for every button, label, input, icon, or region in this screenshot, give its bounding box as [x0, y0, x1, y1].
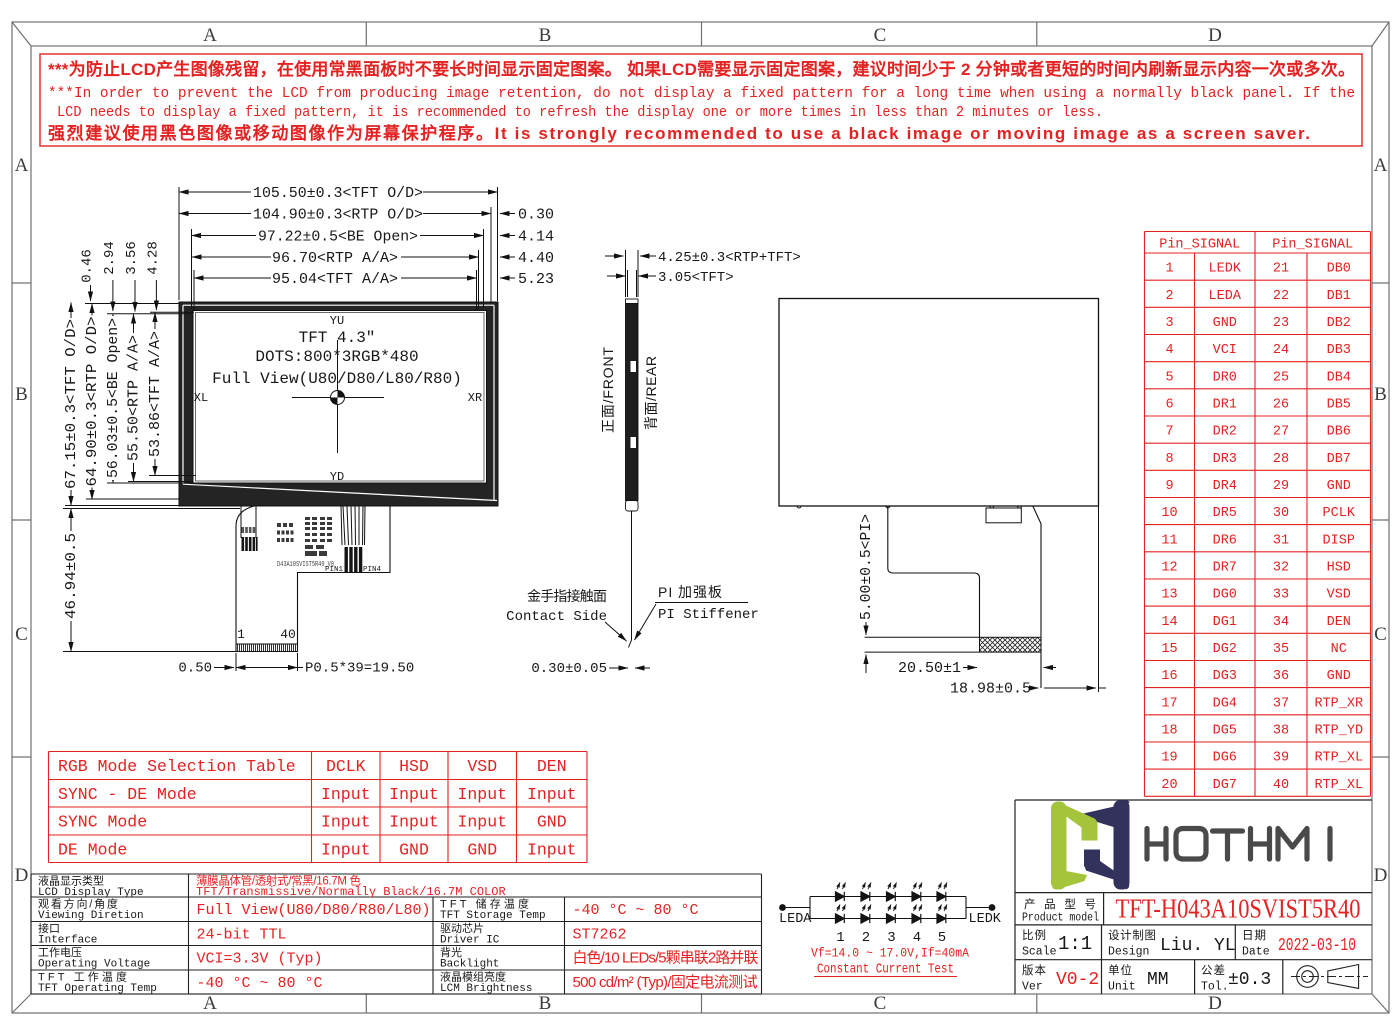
svg-text:53.86<TFT A/A>: 53.86<TFT A/A> — [147, 331, 164, 457]
svg-text:接口: 接口 — [38, 922, 60, 935]
svg-text:公差: 公差 — [1201, 963, 1225, 977]
svg-text:RTP_XL: RTP_XL — [1314, 751, 1363, 766]
svg-text:Vf=14.0 ~ 17.0V,If=40mA: Vf=14.0 ~ 17.0V,If=40mA — [811, 946, 969, 961]
svg-text:版本: 版本 — [1022, 963, 1047, 977]
svg-text:DR3: DR3 — [1213, 452, 1237, 467]
svg-text:Input: Input — [389, 785, 439, 804]
svg-text:26: 26 — [1273, 398, 1289, 413]
svg-text:0.50: 0.50 — [178, 661, 212, 677]
svg-text:1: 1 — [836, 930, 844, 946]
svg-text:A: A — [203, 993, 217, 1014]
svg-text:17: 17 — [1161, 696, 1177, 711]
svg-text:PCLK: PCLK — [1323, 506, 1356, 521]
svg-text:TFT Operating Temp: TFT Operating Temp — [38, 983, 157, 995]
svg-text:V0-2: V0-2 — [1056, 970, 1099, 990]
svg-text:2022-03-10: 2022-03-10 — [1278, 936, 1356, 956]
svg-text:DB3: DB3 — [1327, 343, 1351, 358]
svg-text:DB1: DB1 — [1327, 289, 1351, 304]
svg-text:40: 40 — [1273, 778, 1289, 793]
svg-text:46.94±0.5: 46.94±0.5 — [63, 533, 80, 619]
svg-text:液晶模组亮度: 液晶模组亮度 — [440, 970, 506, 984]
svg-text:D: D — [1208, 993, 1222, 1014]
svg-text:HSD: HSD — [399, 757, 429, 776]
svg-text:22: 22 — [1273, 289, 1289, 304]
svg-text:ST7262: ST7262 — [573, 927, 627, 944]
svg-text:SYNC - DE Mode: SYNC - DE Mode — [58, 785, 197, 804]
svg-text:DISP: DISP — [1323, 533, 1355, 548]
svg-text:DCLK: DCLK — [326, 757, 366, 776]
svg-text:金手指接触面: 金手指接触面 — [527, 588, 607, 604]
svg-text:PI 加强板: PI 加强板 — [658, 584, 722, 600]
svg-text:LCD needs to display a fixed p: LCD needs to display a fixed pattern, it… — [57, 104, 1103, 121]
svg-text:DR2: DR2 — [1213, 425, 1237, 440]
svg-text:DR5: DR5 — [1213, 506, 1237, 521]
svg-text:DR7: DR7 — [1213, 561, 1237, 576]
svg-text:67.15±0.3<TFT O/D>: 67.15±0.3<TFT O/D> — [63, 319, 80, 489]
svg-text:B: B — [15, 384, 28, 405]
svg-text:Unit: Unit — [1108, 981, 1136, 994]
svg-text:4.25±0.3<RTP+TFT>: 4.25±0.3<RTP+TFT> — [658, 250, 801, 266]
svg-text:Full View(U80/D80/L80/R80): Full View(U80/D80/L80/R80) — [212, 370, 462, 388]
svg-text:DB7: DB7 — [1327, 452, 1351, 467]
svg-text:56.03±0.5<BE Open>: 56.03±0.5<BE Open> — [105, 318, 122, 478]
svg-text:YU: YU — [330, 314, 344, 328]
svg-text:LCD Display Type: LCD Display Type — [38, 887, 144, 899]
svg-text:21: 21 — [1273, 262, 1289, 277]
svg-text:DB5: DB5 — [1327, 398, 1351, 413]
svg-text:0.30: 0.30 — [518, 207, 554, 224]
svg-text:Design: Design — [1108, 946, 1149, 959]
svg-text:GND: GND — [537, 813, 567, 832]
svg-text:NC: NC — [1331, 642, 1347, 657]
svg-text:37: 37 — [1273, 696, 1289, 711]
svg-text:A: A — [203, 25, 217, 46]
svg-text:DG6: DG6 — [1213, 751, 1237, 766]
svg-text:DB6: DB6 — [1327, 425, 1351, 440]
svg-text:4: 4 — [1165, 343, 1173, 358]
svg-text:RGB Mode Selection Table: RGB Mode Selection Table — [58, 757, 296, 776]
svg-text:液晶显示类型: 液晶显示类型 — [38, 874, 104, 888]
svg-text:2: 2 — [862, 930, 870, 946]
svg-text:36: 36 — [1273, 669, 1289, 684]
svg-text:驱动芯片: 驱动芯片 — [440, 921, 484, 935]
svg-text:Full View(U80/D80/R80/L80): Full View(U80/D80/R80/L80) — [197, 902, 431, 919]
svg-text:2.94: 2.94 — [102, 241, 118, 275]
svg-text:XR: XR — [468, 391, 482, 405]
svg-text:DG1: DG1 — [1213, 615, 1237, 630]
svg-text:TFT-H043A10SVIST5R40: TFT-H043A10SVIST5R40 — [1116, 894, 1361, 924]
svg-text:B: B — [539, 993, 552, 1014]
svg-text:D43A10SVIST5R40_V0: D43A10SVIST5R40_V0 — [277, 561, 334, 569]
svg-text:-40 °C ~ 80 °C: -40 °C ~ 80 °C — [197, 975, 323, 992]
svg-text:13: 13 — [1161, 588, 1177, 603]
svg-text:2: 2 — [1165, 289, 1173, 304]
svg-text:31: 31 — [1273, 533, 1289, 548]
svg-text:25: 25 — [1273, 370, 1289, 385]
svg-text:DR4: DR4 — [1213, 479, 1237, 494]
svg-text:5: 5 — [938, 930, 946, 946]
svg-text:9: 9 — [1165, 479, 1173, 494]
svg-text:LEDK: LEDK — [1209, 262, 1242, 277]
svg-text:500 cd/m² (Typ)/固定电流测试: 500 cd/m² (Typ)/固定电流测试 — [573, 974, 758, 991]
svg-text:4.40: 4.40 — [518, 250, 554, 267]
svg-text:P0.5*39=19.50: P0.5*39=19.50 — [305, 661, 414, 677]
svg-text:39: 39 — [1273, 751, 1289, 766]
svg-text:DOTS:800*3RGB*480: DOTS:800*3RGB*480 — [255, 348, 418, 366]
svg-text:GND: GND — [399, 841, 429, 860]
svg-text:HSD: HSD — [1327, 561, 1351, 576]
svg-text:***In order to prevent the LCD: ***In order to prevent the LCD from prod… — [48, 85, 1355, 102]
svg-text:3: 3 — [1165, 316, 1173, 331]
svg-text:日期: 日期 — [1242, 929, 1266, 942]
svg-text:Input: Input — [321, 841, 371, 860]
svg-text:Ver: Ver — [1022, 981, 1043, 994]
svg-text:34: 34 — [1273, 615, 1289, 630]
svg-text:DB4: DB4 — [1327, 370, 1351, 385]
svg-text:35: 35 — [1273, 642, 1289, 657]
svg-text:GND: GND — [1327, 479, 1351, 494]
svg-text:DG4: DG4 — [1213, 696, 1237, 711]
svg-text:VCI=3.3V (Typ): VCI=3.3V (Typ) — [197, 951, 323, 968]
svg-text:6: 6 — [1165, 398, 1173, 413]
svg-text:GND: GND — [1213, 316, 1237, 331]
svg-text:12: 12 — [1161, 561, 1177, 576]
svg-text:Input: Input — [321, 813, 371, 832]
svg-text:A: A — [15, 155, 29, 176]
svg-text:±0.3: ±0.3 — [1228, 970, 1271, 990]
svg-text:正面/FRONT: 正面/FRONT — [600, 347, 616, 433]
svg-text:MM: MM — [1147, 970, 1169, 990]
svg-text:C: C — [874, 25, 887, 46]
svg-text:DG2: DG2 — [1213, 642, 1237, 657]
svg-text:Input: Input — [321, 785, 371, 804]
svg-text:1: 1 — [1165, 262, 1173, 277]
svg-text:Pin_SIGNAL: Pin_SIGNAL — [1159, 238, 1240, 253]
svg-text:TFT/Transmissive/Normally Blac: TFT/Transmissive/Normally Black/16.7M CO… — [196, 885, 506, 899]
svg-text:5: 5 — [1165, 370, 1173, 385]
svg-text:RTP_XL: RTP_XL — [1314, 778, 1363, 793]
svg-text:Constant Current Test: Constant Current Test — [817, 963, 954, 978]
svg-text:Date: Date — [1242, 946, 1270, 959]
svg-text:Operating Voltage: Operating Voltage — [38, 959, 150, 971]
svg-text:104.90±0.3<RTP O/D>: 104.90±0.3<RTP O/D> — [253, 207, 423, 224]
svg-text:Input: Input — [457, 785, 507, 804]
svg-text:B: B — [539, 25, 552, 46]
svg-text:1:1: 1:1 — [1058, 933, 1092, 955]
svg-text:24: 24 — [1273, 343, 1289, 358]
svg-text:23: 23 — [1273, 316, 1289, 331]
svg-text:GND: GND — [467, 841, 497, 860]
svg-text:30: 30 — [1273, 506, 1289, 521]
svg-text:白色/10 LEDs/5颗串联2路并联: 白色/10 LEDs/5颗串联2路并联 — [573, 950, 759, 967]
svg-text:PIN4: PIN4 — [363, 566, 382, 574]
svg-text:GND: GND — [1327, 669, 1351, 684]
svg-text:Input: Input — [527, 841, 577, 860]
svg-text:***为防止LCD产生图像残留，在使用常黑面板时不要长时间显: ***为防止LCD产生图像残留，在使用常黑面板时不要长时间显示固定图案。 如果L… — [48, 59, 1355, 79]
svg-text:7: 7 — [1165, 425, 1173, 440]
svg-text:C: C — [874, 993, 887, 1014]
svg-text:DG3: DG3 — [1213, 669, 1237, 684]
svg-text:A: A — [1374, 155, 1388, 176]
svg-text:0.30±0.05: 0.30±0.05 — [531, 661, 607, 677]
svg-text:背面/REAR: 背面/REAR — [643, 356, 659, 430]
svg-text:95.04<TFT A/A>: 95.04<TFT A/A> — [272, 271, 398, 288]
svg-text:D: D — [1208, 25, 1222, 46]
svg-text:D: D — [15, 865, 29, 886]
svg-text:LEDA: LEDA — [1209, 289, 1242, 304]
svg-text:5.23: 5.23 — [518, 271, 554, 288]
svg-text:38: 38 — [1273, 724, 1289, 739]
svg-text:96.70<RTP A/A>: 96.70<RTP A/A> — [272, 250, 398, 267]
svg-text:工作电压: 工作电压 — [38, 946, 82, 959]
svg-text:C: C — [1374, 624, 1387, 645]
svg-text:8: 8 — [1165, 452, 1173, 467]
svg-text:Tol.: Tol. — [1201, 981, 1229, 994]
svg-text:DEN: DEN — [537, 757, 567, 776]
svg-text:LEDK: LEDK — [969, 912, 1002, 927]
svg-text:Driver IC: Driver IC — [440, 935, 500, 947]
svg-text:14: 14 — [1161, 615, 1177, 630]
svg-text:-40 °C ~ 80 °C: -40 °C ~ 80 °C — [573, 902, 699, 919]
svg-text:18: 18 — [1161, 724, 1177, 739]
svg-text:VCI: VCI — [1213, 343, 1237, 358]
svg-text:C: C — [15, 624, 28, 645]
svg-text:TFT Storage Temp: TFT Storage Temp — [440, 910, 546, 922]
svg-text:16: 16 — [1161, 669, 1177, 684]
svg-text:Input: Input — [389, 813, 439, 832]
svg-text:4.14: 4.14 — [518, 229, 554, 246]
svg-text:32: 32 — [1273, 561, 1289, 576]
svg-text:产 品 型 号: 产 品 型 号 — [1024, 897, 1096, 911]
svg-text:LEDA: LEDA — [779, 912, 812, 927]
svg-text:19: 19 — [1161, 751, 1177, 766]
svg-text:SYNC Mode: SYNC Mode — [58, 813, 147, 832]
svg-text:Input: Input — [527, 785, 577, 804]
svg-text:B: B — [1374, 384, 1387, 405]
svg-text:55.50<RTP A/A>: 55.50<RTP A/A> — [126, 335, 143, 461]
svg-text:4: 4 — [913, 930, 921, 946]
svg-text:YD: YD — [330, 470, 344, 484]
svg-text:DEN: DEN — [1327, 615, 1351, 630]
svg-text:RTP_XR: RTP_XR — [1314, 696, 1363, 711]
svg-text:DR0: DR0 — [1213, 370, 1237, 385]
svg-text:105.50±0.3<TFT O/D>: 105.50±0.3<TFT O/D> — [253, 185, 423, 202]
svg-text:10: 10 — [1161, 506, 1177, 521]
svg-text:Input: Input — [457, 813, 507, 832]
svg-text:VSD: VSD — [467, 757, 497, 776]
svg-text:PI Stiffener: PI Stiffener — [658, 607, 759, 623]
svg-text:Scale: Scale — [1022, 946, 1057, 959]
svg-text:Pin_SIGNAL: Pin_SIGNAL — [1272, 238, 1353, 253]
svg-text:Contact Side: Contact Side — [506, 609, 607, 625]
svg-text:5.00±0.5<PI>: 5.00±0.5<PI> — [858, 514, 875, 620]
svg-text:3.56: 3.56 — [124, 241, 140, 275]
svg-text:单位: 单位 — [1108, 963, 1132, 977]
svg-text:11: 11 — [1161, 533, 1177, 548]
svg-text:背光: 背光 — [440, 945, 462, 959]
svg-text:3.05<TFT>: 3.05<TFT> — [658, 270, 734, 286]
svg-text:4.28: 4.28 — [145, 241, 161, 275]
svg-text:LCM Brightness: LCM Brightness — [440, 983, 532, 995]
svg-text:40: 40 — [280, 627, 296, 642]
svg-text:Interface: Interface — [38, 935, 97, 947]
svg-text:1: 1 — [237, 627, 245, 642]
svg-text:Backlight: Backlight — [440, 959, 499, 971]
svg-text:Product model: Product model — [1022, 912, 1099, 925]
svg-text:DG0: DG0 — [1213, 588, 1237, 603]
svg-text:VSD: VSD — [1327, 588, 1351, 603]
svg-text:29: 29 — [1273, 479, 1289, 494]
svg-text:64.90±0.3<RTP O/D>: 64.90±0.3<RTP O/D> — [84, 317, 101, 487]
svg-text:20: 20 — [1161, 778, 1177, 793]
svg-text:3: 3 — [887, 930, 895, 946]
svg-text:DG5: DG5 — [1213, 724, 1237, 739]
svg-text:DB2: DB2 — [1327, 316, 1351, 331]
svg-text:XL: XL — [194, 391, 208, 405]
svg-text:24-bit TTL: 24-bit TTL — [197, 927, 287, 944]
svg-text:33: 33 — [1273, 588, 1289, 603]
svg-text:DR1: DR1 — [1213, 398, 1237, 413]
svg-text:20.50±1: 20.50±1 — [898, 660, 961, 677]
svg-text:DE Mode: DE Mode — [58, 841, 127, 860]
svg-text:DG7: DG7 — [1213, 778, 1237, 793]
svg-text:RTP_YD: RTP_YD — [1314, 724, 1363, 739]
svg-text:D: D — [1374, 865, 1388, 886]
svg-text:0.46: 0.46 — [80, 249, 96, 283]
svg-text:比例: 比例 — [1022, 928, 1046, 942]
svg-text:97.22±0.5<BE Open>: 97.22±0.5<BE Open> — [258, 229, 418, 246]
svg-text:DB0: DB0 — [1327, 262, 1351, 277]
svg-text:18.98±0.5: 18.98±0.5 — [950, 681, 1031, 698]
svg-text:Viewing Diretion: Viewing Diretion — [38, 910, 144, 922]
svg-text:28: 28 — [1273, 452, 1289, 467]
svg-text:DR6: DR6 — [1213, 533, 1237, 548]
svg-text:27: 27 — [1273, 425, 1289, 440]
svg-text:强烈建议使用黑色图像或移动图像作为屏幕保护程序。It is: 强烈建议使用黑色图像或移动图像作为屏幕保护程序。It is strongly r… — [48, 123, 1310, 143]
svg-text:15: 15 — [1161, 642, 1177, 657]
svg-text:TFT 4.3": TFT 4.3" — [299, 329, 376, 347]
svg-text:设计制图: 设计制图 — [1108, 929, 1156, 942]
svg-text:Liu. YL: Liu. YL — [1160, 936, 1236, 956]
